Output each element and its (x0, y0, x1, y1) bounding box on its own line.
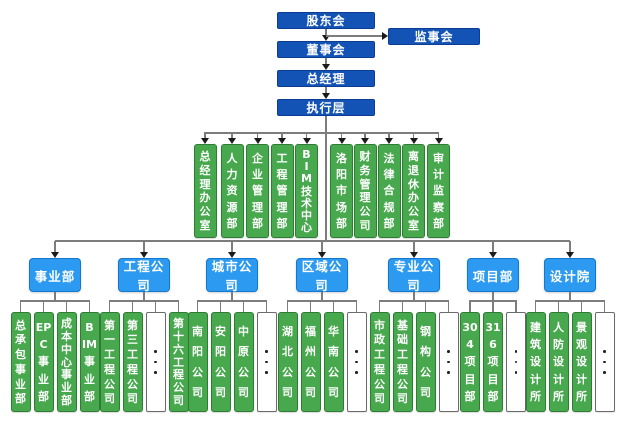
box-label-line: 项 (488, 356, 499, 367)
luoyang-market-dept-box: 洛阳市场部 (330, 144, 353, 238)
box-label-line: 十 (173, 331, 184, 342)
box-label-line: 离 (408, 151, 419, 162)
box-label-line: 司 (238, 387, 249, 398)
box-label-line: 市 (374, 320, 385, 331)
more-regional-companies-box (347, 312, 367, 412)
box-label-line: 办 (408, 192, 419, 203)
box-label-line: 福 (305, 326, 316, 337)
box-label-line: 资 (227, 185, 238, 196)
box-label-line: 业 (38, 374, 49, 385)
project-departments-box: 项目部 (467, 258, 519, 292)
box-label-line: 司 (173, 395, 184, 406)
connector-line (379, 300, 381, 312)
box-label-line: 承 (15, 334, 26, 345)
box-label-line: 司 (282, 387, 293, 398)
connector-line (581, 300, 583, 312)
box-label: 总经理 (306, 70, 345, 87)
fuzhou-company-box: 福州公司 (301, 312, 321, 412)
box-label-line: 部 (277, 218, 288, 229)
box-label-line: 所 (576, 391, 587, 402)
box-label: 工程公司 (119, 256, 169, 294)
box-label-line: 部 (384, 218, 395, 229)
box-label: 董事会 (306, 41, 345, 58)
box-label-line: 合 (384, 185, 395, 196)
box-label-line: 部 (433, 218, 444, 229)
connector-line (109, 300, 111, 312)
box-label-line: 设 (530, 356, 541, 367)
connector-line (492, 300, 494, 312)
ellipsis-dot (154, 371, 157, 374)
box-label-line: 工 (104, 349, 115, 360)
connector-line (89, 300, 91, 312)
box-label-line: 目 (465, 374, 476, 385)
connector-line (54, 292, 56, 300)
ellipsis-dot (355, 371, 358, 374)
box-label-line: 司 (305, 387, 316, 398)
box-label-line: 基 (397, 320, 408, 331)
connector-line (143, 292, 145, 300)
box-label-line: 退 (408, 165, 419, 176)
general-manager-office-box: 总经理办公室 (194, 144, 217, 238)
connector-line (413, 292, 415, 300)
box-label-line: 部 (252, 218, 263, 229)
org-chart: 股东会董事会总经理执行层监事会总经理办公室人力资源部企业管理部工程管理部BIM技… (0, 0, 625, 425)
connector-line (569, 292, 571, 300)
box-label-line: 休 (408, 179, 419, 190)
connector-line (402, 300, 404, 312)
south-china-company-box: 华南公司 (324, 312, 344, 412)
business-division-box: 事业部 (29, 258, 81, 292)
architectural-design-studio-box: 建筑设计所 (526, 312, 546, 412)
box-label-line: 计 (530, 374, 541, 385)
box-label-line: 公 (397, 379, 408, 390)
audit-supervision-dept-box: 审计监察部 (427, 144, 450, 238)
box-label-line: 公 (360, 206, 371, 217)
box-label-line: 总 (200, 151, 211, 162)
supervisory-board-box: 监事会 (388, 28, 480, 45)
general-manager-box: 总经理 (277, 70, 375, 87)
box-label-line: 察 (433, 202, 444, 213)
ellipsis-dot (515, 350, 518, 353)
box-label-line: 工 (127, 349, 138, 360)
box-label-line: 南 (328, 346, 339, 357)
ellipsis-dot (515, 361, 518, 364)
connector-line (288, 300, 357, 302)
box-label-line: 设 (553, 356, 564, 367)
box-label-line: 理 (200, 179, 211, 190)
connector-line (21, 300, 90, 302)
box-label-line: 理 (252, 202, 263, 213)
connector-line (380, 300, 449, 302)
box-label-line: 项 (465, 356, 476, 367)
connector-line (197, 300, 199, 312)
connector-line (243, 300, 245, 312)
box-label-line: 力 (227, 169, 238, 180)
box-label-line: 人 (227, 153, 238, 164)
ellipsis-dot (603, 361, 606, 364)
box-label-line: 成 (61, 318, 72, 329)
box-label-line: 理 (277, 202, 288, 213)
box-label-line: M (301, 173, 312, 184)
connector-line (535, 300, 537, 312)
box-label-line: 公 (127, 379, 138, 390)
box-label-line: 公 (282, 367, 293, 378)
connector-line (178, 300, 180, 312)
box-label-line: 部 (227, 218, 238, 229)
nanyang-company-box: 南阳公司 (188, 312, 208, 412)
box-label-line: 阳 (192, 346, 203, 357)
box-label-line: 总 (15, 320, 26, 331)
box-label-line: 础 (397, 334, 408, 345)
retirees-office-box: 离退休办公室 (402, 144, 425, 238)
more-specialty-companies-box (439, 312, 459, 412)
ellipsis-dot (265, 361, 268, 364)
box-label-line: 司 (397, 393, 408, 404)
connector-line (155, 300, 157, 312)
box-label-line: 场 (336, 202, 347, 213)
connector-line (492, 292, 494, 300)
bim-technology-center-box: BIM技术中心 (295, 144, 318, 238)
box-label: 城市公司 (207, 256, 257, 294)
box-label-line: 公 (215, 367, 226, 378)
connector-line (205, 132, 439, 134)
box-label-line: 第 (104, 320, 115, 331)
box-label-line: 部 (61, 395, 72, 406)
box-label-line: 安 (215, 326, 226, 337)
box-label-line: 业 (61, 382, 72, 393)
connector-line (604, 300, 606, 312)
box-label-line: 人 (553, 322, 564, 333)
no16-engineering-company-box: 第十六工程公司 (169, 312, 189, 412)
box-label-line: 华 (328, 326, 339, 337)
box-label-line: 一 (104, 334, 115, 345)
box-label-line: 计 (433, 169, 444, 180)
box-label-line: 6 (489, 339, 497, 350)
box-label-line: 业 (84, 374, 95, 385)
box-label-line: 公 (305, 367, 316, 378)
box-label-line: 中 (301, 210, 312, 221)
box-label-line: 室 (408, 220, 419, 231)
box-label-line: 心 (61, 357, 72, 368)
box-label-line: 阳 (215, 346, 226, 357)
box-label-line: 务 (360, 165, 371, 176)
box-label-line: 州 (305, 346, 316, 357)
box-label-line: 办 (200, 192, 211, 203)
box-label-line: 程 (374, 364, 385, 375)
design-institute-box: 设计院 (544, 258, 596, 292)
project-316-box: 316项目部 (483, 312, 503, 412)
box-label-line: 目 (488, 374, 499, 385)
box-label-line: 六 (173, 344, 184, 355)
box-label-line: 司 (127, 393, 138, 404)
box-label: 执行层 (306, 99, 345, 116)
box-label: 监事会 (414, 28, 453, 45)
box-label-line: 工 (374, 349, 385, 360)
ellipsis-dot (154, 361, 157, 364)
connector-line (425, 300, 427, 312)
foundation-engineering-company-box: 基础工程公司 (393, 312, 413, 412)
ellipsis-dot (447, 350, 450, 353)
box-label-line: 司 (104, 393, 115, 404)
box-label-line: 所 (553, 391, 564, 402)
connector-line (321, 292, 323, 300)
board-of-directors-box: 董事会 (277, 41, 375, 58)
box-label-line: 北 (282, 346, 293, 357)
box-label-line: B (85, 322, 93, 333)
ellipsis-dot (154, 350, 157, 353)
box-label-line: 筑 (530, 339, 541, 350)
box-label-line: 司 (192, 387, 203, 398)
human-resources-dept-box: 人力资源部 (221, 144, 244, 238)
connector-line (266, 300, 268, 312)
connector-line (558, 300, 560, 312)
box-label-line: 公 (192, 367, 203, 378)
box-label-line: B (302, 149, 310, 160)
box-label-line: 计 (553, 374, 564, 385)
box-label-line: 30 (462, 322, 477, 333)
connector-line (132, 300, 134, 312)
hubei-company-box: 湖北公司 (278, 312, 298, 412)
box-label-line: 业 (252, 169, 263, 180)
box-label-line: 事 (15, 364, 26, 375)
connector-line (326, 35, 383, 37)
executive-layer-box: 执行层 (277, 99, 375, 116)
box-label-line: 构 (420, 346, 431, 357)
box-label-line: 规 (384, 202, 395, 213)
box-label-line: 管 (277, 185, 288, 196)
box-label-line: 事 (84, 356, 95, 367)
ellipsis-dot (603, 350, 606, 353)
box-label-line: 本 (61, 331, 72, 342)
box-label-line: 中 (238, 326, 249, 337)
box-label-line: 中 (61, 344, 72, 355)
box-label-line: 律 (384, 169, 395, 180)
connector-line (325, 116, 327, 240)
box-label-line: 事 (38, 356, 49, 367)
box-label-line: 钢 (420, 326, 431, 337)
general-contracting-division-box: 总承包事业部 (11, 312, 31, 412)
box-label: 设计院 (550, 266, 591, 285)
box-label-line: 部 (15, 393, 26, 404)
box-label: 专业公司 (389, 256, 439, 294)
box-label-line: 工 (277, 153, 288, 164)
epc-division-box: EPC事业部 (34, 312, 54, 412)
box-label-line: 公 (328, 367, 339, 378)
enterprise-management-dept-box: 企业管理部 (246, 144, 269, 238)
box-label-line: 法 (384, 153, 395, 164)
connector-line (20, 300, 22, 312)
box-label-line: 公 (173, 382, 184, 393)
finance-management-company-box: 财务管理公司 (354, 144, 377, 238)
box-label-line: 防 (553, 339, 564, 350)
box-label-line: 公 (238, 367, 249, 378)
box-label-line: 程 (173, 369, 184, 380)
ellipsis-dot (515, 371, 518, 374)
box-label: 事业部 (35, 266, 76, 285)
legal-compliance-dept-box: 法律合规部 (378, 144, 401, 238)
box-label-line: 业 (15, 379, 26, 390)
city-companies-box: 城市公司 (206, 258, 258, 292)
box-label-line: 观 (576, 339, 587, 350)
box-label-line: 程 (397, 364, 408, 375)
box-label-line: 公 (408, 206, 419, 217)
connector-line (220, 300, 222, 312)
ellipsis-dot (265, 350, 268, 353)
box-label-line: 理 (360, 192, 371, 203)
engineering-management-dept-box: 工程管理部 (271, 144, 294, 238)
box-label-line: 三 (127, 334, 138, 345)
ellipsis-dot (447, 371, 450, 374)
box-label-line: I (304, 161, 308, 172)
connector-line (287, 300, 289, 312)
box-label-line: 湖 (282, 326, 293, 337)
box-label-line: 部 (465, 391, 476, 402)
box-label-line: 政 (374, 334, 385, 345)
no3-engineering-company-box: 第三工程公司 (123, 312, 143, 412)
ellipsis-dot (265, 371, 268, 374)
box-label-line: 部 (488, 391, 499, 402)
ellipsis-dot (355, 350, 358, 353)
box-label-line: 技 (301, 186, 312, 197)
box-label-line: 事 (61, 369, 72, 380)
box-label-line: 景 (576, 322, 587, 333)
box-label-line: 工 (397, 349, 408, 360)
civil-defense-design-studio-box: 人防设计所 (549, 312, 569, 412)
more-design-studios-box (595, 312, 615, 412)
box-label-line: 南 (192, 326, 203, 337)
box-label-line: 司 (374, 393, 385, 404)
connector-line (448, 300, 450, 312)
box-label-line: 第 (173, 318, 184, 329)
box-label-line: 所 (530, 391, 541, 402)
regional-companies-box: 区域公司 (296, 258, 348, 292)
connector-line (110, 300, 179, 302)
box-label-line: 设 (576, 356, 587, 367)
specialty-companies-box: 专业公司 (388, 258, 440, 292)
shareholders-meeting-box: 股东会 (277, 12, 375, 29)
box-label-line: 经 (200, 165, 211, 176)
box-label-line: 司 (328, 387, 339, 398)
box-label-line: 原 (238, 346, 249, 357)
box-label-line: 31 (485, 322, 500, 333)
box-label-line: 源 (227, 202, 238, 213)
municipal-engineering-company-box: 市政工程公司 (370, 312, 390, 412)
box-label-line: 司 (360, 220, 371, 231)
connector-line (333, 300, 335, 312)
box-label-line: 部 (336, 218, 347, 229)
connector-line (515, 300, 517, 312)
anyang-company-box: 安阳公司 (211, 312, 231, 412)
box-label-line: 财 (360, 151, 371, 162)
box-label-line: 心 (301, 222, 312, 233)
connector-line (198, 300, 267, 302)
box-label-line: 管 (360, 179, 371, 190)
connector-line (536, 300, 605, 302)
box-label-line: EP (36, 322, 52, 333)
more-city-companies-box (257, 312, 277, 412)
box-label-line: 程 (127, 364, 138, 375)
cost-center-division-box: 成本中心事业部 (57, 312, 77, 412)
box-label-line: 包 (15, 349, 26, 360)
box-label-line: 企 (252, 153, 263, 164)
box-label-line: 司 (420, 387, 431, 398)
box-label-line: 计 (576, 374, 587, 385)
ellipsis-dot (355, 361, 358, 364)
connector-line (66, 300, 68, 312)
box-label-line: 程 (104, 364, 115, 375)
zhongyuan-company-box: 中原公司 (234, 312, 254, 412)
box-label: 区域公司 (297, 256, 347, 294)
landscape-design-studio-box: 景观设计所 (572, 312, 592, 412)
box-label-line: 监 (433, 185, 444, 196)
box-label-line: 市 (336, 185, 347, 196)
box-label-line: 司 (215, 387, 226, 398)
engineering-companies-box: 工程公司 (118, 258, 170, 292)
ellipsis-dot (447, 361, 450, 364)
box-label-line: 部 (84, 391, 95, 402)
box-label-line: 管 (252, 185, 263, 196)
box-label-line: 阳 (336, 169, 347, 180)
box-label-line: 公 (200, 206, 211, 217)
connector-line (231, 292, 233, 300)
box-label-line: 4 (466, 339, 474, 350)
connector-line (469, 300, 471, 312)
box-label-line: 审 (433, 153, 444, 164)
connector-line (43, 300, 45, 312)
bim-division-box: BIM事业部 (80, 312, 100, 412)
more-engineering-companies-box (146, 312, 166, 412)
box-label-line: C (39, 339, 47, 350)
box-label-line: 公 (104, 379, 115, 390)
box-label-line: 建 (530, 322, 541, 333)
connector-line (356, 300, 358, 312)
box-label-line: 工 (173, 357, 184, 368)
box-label-line: 程 (277, 169, 288, 180)
box-label-line: 公 (420, 367, 431, 378)
box-label-line: 公 (374, 379, 385, 390)
box-label-line: 部 (38, 391, 49, 402)
ellipsis-dot (603, 371, 606, 374)
box-label-line: IM (82, 339, 97, 350)
box-label-line: 洛 (336, 153, 347, 164)
steel-structure-company-box: 钢构公司 (416, 312, 436, 412)
box-label: 项目部 (473, 266, 514, 285)
more-project-departments-box (506, 312, 526, 412)
box-label-line: 术 (301, 198, 312, 209)
connector-line (310, 300, 312, 312)
box-label-line: 室 (200, 220, 211, 231)
no1-engineering-company-box: 第一工程公司 (100, 312, 120, 412)
box-label-line: 第 (127, 320, 138, 331)
box-label: 股东会 (306, 12, 345, 29)
project-304-box: 304项目部 (460, 312, 480, 412)
